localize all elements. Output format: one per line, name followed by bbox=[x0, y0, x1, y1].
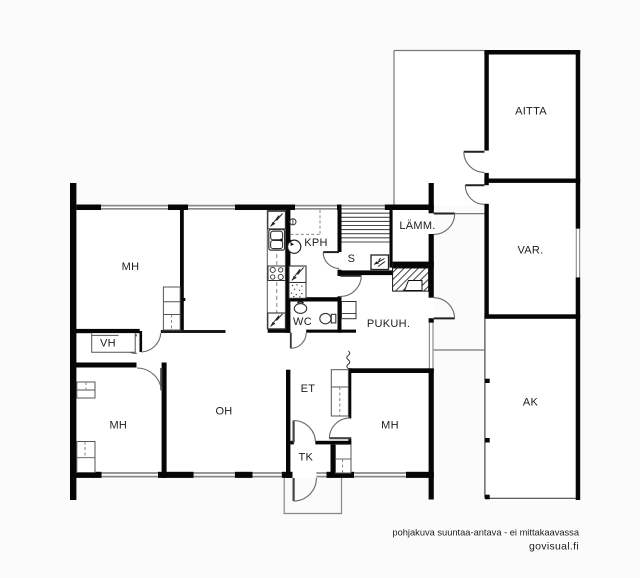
svg-text:KPH: KPH bbox=[304, 237, 328, 249]
svg-text:pohjakuva suuntaa-antava - ei: pohjakuva suuntaa-antava - ei mittakaava… bbox=[392, 528, 579, 538]
svg-text:LÄMM.: LÄMM. bbox=[399, 220, 435, 232]
svg-text:PUKUH.: PUKUH. bbox=[367, 318, 410, 330]
svg-text:VH: VH bbox=[100, 338, 116, 350]
svg-text:AK: AK bbox=[523, 397, 539, 409]
svg-text:VAR.: VAR. bbox=[517, 245, 543, 257]
svg-text:govisual.fi: govisual.fi bbox=[529, 541, 579, 553]
svg-text:MH: MH bbox=[381, 420, 399, 432]
svg-text:S: S bbox=[348, 253, 356, 265]
svg-text:MH: MH bbox=[109, 420, 127, 432]
svg-text:AITTA: AITTA bbox=[515, 106, 547, 118]
svg-text:WC: WC bbox=[293, 316, 312, 328]
svg-text:MH: MH bbox=[122, 261, 140, 273]
svg-text:TK: TK bbox=[298, 452, 313, 464]
svg-text:OH: OH bbox=[215, 406, 232, 418]
svg-text:ET: ET bbox=[301, 383, 316, 395]
